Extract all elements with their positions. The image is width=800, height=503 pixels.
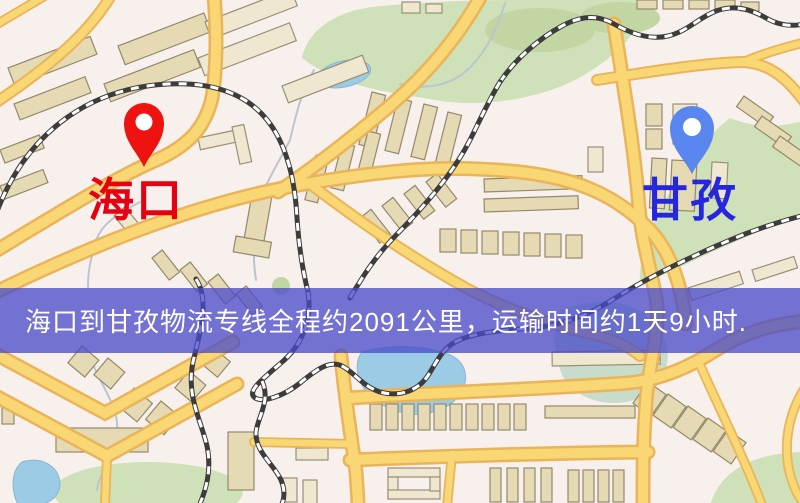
origin-city-label: 海口 [88, 178, 184, 224]
destination-pin[interactable] [666, 104, 718, 176]
destination-pin-body[interactable] [670, 106, 714, 174]
map-viewport: 海口到甘孜物流专线全程约2091公里，运输时间约1天9小时. 海口 甘孜 [0, 0, 800, 503]
origin-pin[interactable] [120, 101, 168, 169]
destination-pin-hole [683, 118, 701, 136]
origin-pin-hole [136, 114, 153, 131]
map-background [0, 0, 800, 503]
destination-city-label: 甘孜 [642, 178, 738, 224]
route-info-banner: 海口到甘孜物流专线全程约2091公里，运输时间约1天9小时. [0, 288, 800, 353]
origin-pin-body[interactable] [124, 103, 164, 167]
route-info-text: 海口到甘孜物流专线全程约2091公里，运输时间约1天9小时. [0, 302, 747, 339]
